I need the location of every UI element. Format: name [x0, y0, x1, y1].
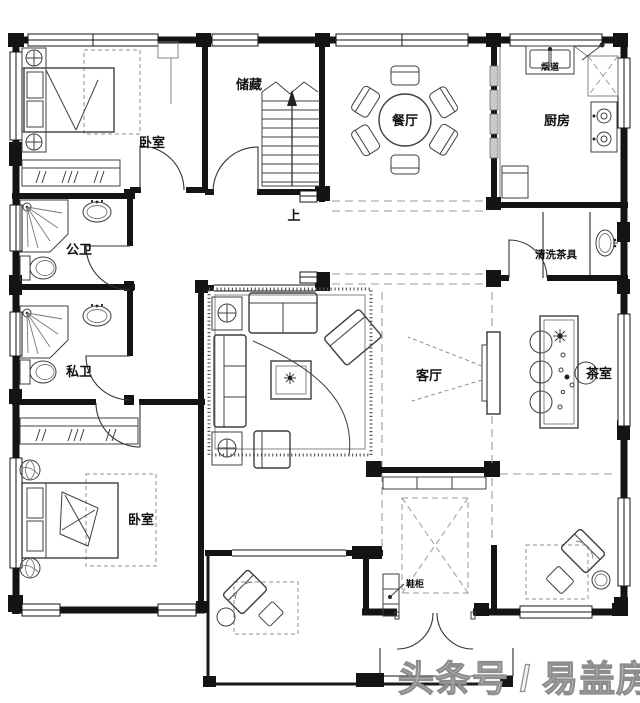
- plant: [20, 558, 40, 578]
- wall-cabinet: [158, 42, 178, 58]
- tv: [482, 345, 487, 401]
- stairs: [262, 82, 320, 186]
- private-bath-door: [86, 356, 130, 400]
- stool: [530, 361, 552, 383]
- tea-table: [540, 316, 578, 428]
- toilet: [20, 360, 30, 384]
- walls: [12, 36, 628, 684]
- public-bath-fixtures: [20, 200, 111, 280]
- storage-door: [213, 147, 258, 192]
- room-label-dining: 餐厅: [391, 113, 418, 128]
- stairs-up-label: 上: [287, 208, 300, 223]
- tea-wash-fixtures: [596, 230, 618, 256]
- floor-plan: 卧室 储藏 上 餐厅 厨房 烟道 公卫 私卫 客厅 茶室 清洗茶具 鞋柜 卧室 …: [0, 0, 640, 703]
- stool: [530, 331, 552, 353]
- stool: [530, 391, 552, 413]
- room-label-kitchen: 厨房: [544, 113, 570, 128]
- chaise-chair: [324, 309, 382, 366]
- room-label-public-bath: 公卫: [66, 242, 92, 257]
- room-label-bedroom-bottom: 卧室: [128, 512, 154, 527]
- public-bath-door: [86, 246, 130, 290]
- ottoman: [258, 601, 283, 626]
- watermark-text: 头条号 / 易盖房: [398, 658, 640, 699]
- lounge-chair: [560, 528, 605, 573]
- entry-area: [383, 477, 486, 616]
- armchair: [254, 431, 290, 468]
- living-room-furniture: [209, 289, 500, 468]
- room-label-tea-room: 茶室: [586, 366, 612, 381]
- room-label-private-bath: 私卫: [66, 364, 92, 379]
- ottoman: [546, 566, 574, 594]
- coffee-table: [271, 361, 311, 399]
- lounge-chair: [222, 569, 267, 614]
- doors: [86, 66, 547, 649]
- double-bed: [24, 68, 114, 132]
- room-label-storage: 储藏: [235, 77, 262, 92]
- terrace-furniture: [217, 569, 298, 634]
- flue-label: 烟道: [541, 61, 559, 72]
- shoe-cabinet-label: 鞋柜: [406, 578, 424, 589]
- entry-double-door: [397, 613, 473, 649]
- bedroom-top-door: [140, 146, 184, 190]
- tea-wash-label: 清洗茶具: [535, 248, 577, 261]
- plant: [553, 329, 567, 343]
- wardrobe: [20, 418, 138, 444]
- bedroom-bottom-furniture: [20, 418, 156, 578]
- patio-furniture: [526, 528, 610, 599]
- room-label-bedroom-top: 卧室: [139, 135, 165, 150]
- side-table: [217, 608, 235, 626]
- plant: [20, 460, 40, 480]
- bedroom-bottom-door: [96, 403, 140, 447]
- room-label-living: 客厅: [416, 368, 442, 383]
- bedroom-top-furniture: [22, 42, 178, 186]
- entry-bench: [383, 477, 486, 489]
- tv-wall: [487, 332, 500, 414]
- sofa-three-seat: [214, 335, 246, 427]
- fridge: [502, 166, 528, 198]
